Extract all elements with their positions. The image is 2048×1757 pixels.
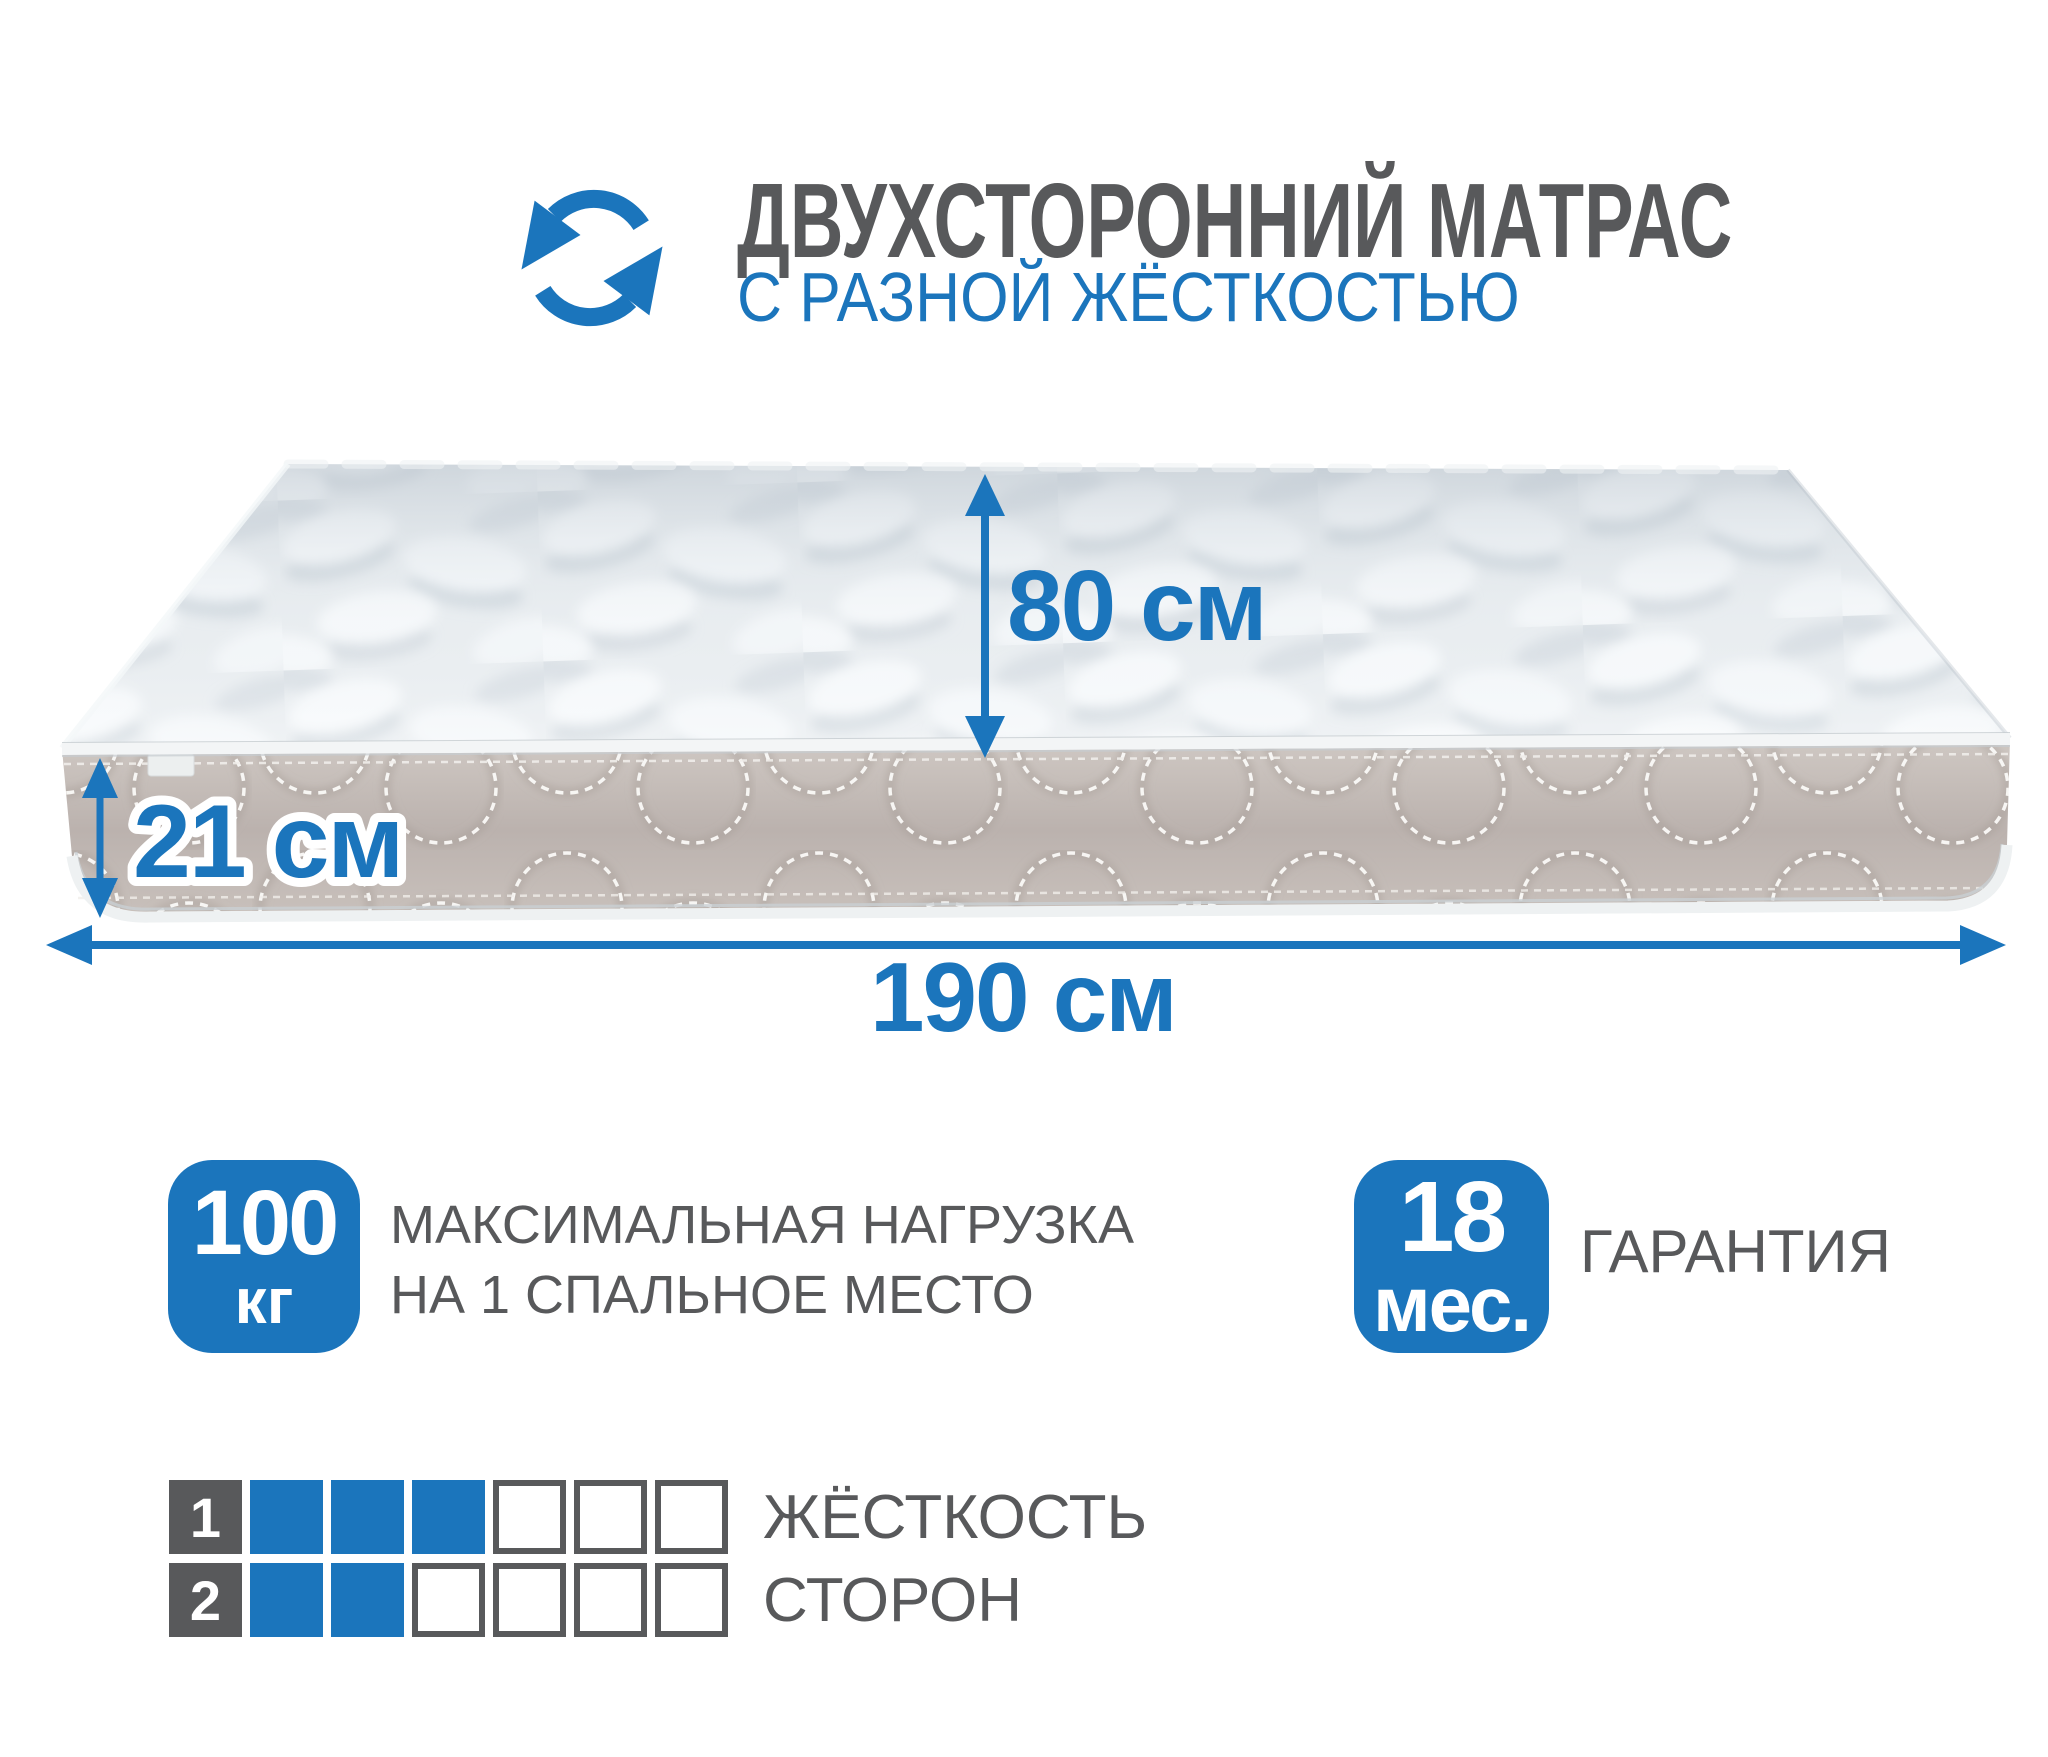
firmness-cell-empty [493,1480,566,1554]
firmness-cell-filled [331,1480,404,1554]
firmness-cell-empty [655,1563,728,1637]
firmness-cell-empty [574,1563,647,1637]
max-load-label-line2: НА 1 СПАЛЬНОЕ МЕСТО [390,1260,1134,1330]
infographic-page: ДВУХСТОРОННИЙ МАТРАС С РАЗНОЙ ЖЁСТКОСТЬЮ [0,0,2048,1757]
firmness-scale-label: ЖЁСТКОСТЬ СТОРОН [763,1480,1147,1646]
firmness-cell-filled [250,1563,323,1637]
firmness-cell-empty [493,1563,566,1637]
warranty-badge: 18 мес. [1354,1160,1549,1353]
thickness-dimension-label: 21 см [133,784,402,900]
warranty-value: 18 [1399,1170,1504,1265]
firmness-scale-label-line2: СТОРОН [763,1563,1147,1637]
firmness-scale-label-line1: ЖЁСТКОСТЬ [763,1480,1147,1554]
max-load-label: МАКСИМАЛЬНАЯ НАГРУЗКА НА 1 СПАЛЬНОЕ МЕСТ… [390,1190,1134,1330]
firmness-cell-empty [412,1563,485,1637]
firmness-cell-empty [574,1480,647,1554]
warranty-label: ГАРАНТИЯ [1580,1222,1891,1282]
firmness-cell-filled [412,1480,485,1554]
width-dimension-label: 80 см [1007,550,1266,662]
mattress-tag [148,754,194,776]
firmness-cell-empty [655,1480,728,1554]
max-load-value: 100 [192,1180,337,1267]
max-load-label-line1: МАКСИМАЛЬНАЯ НАГРУЗКА [390,1190,1134,1260]
length-dimension-label: 190 см [870,942,1176,1052]
firmness-row: 2 [169,1563,736,1637]
max-load-badge: 100 кг [168,1160,360,1353]
firmness-row-index: 2 [169,1563,242,1637]
firmness-cell-filled [331,1563,404,1637]
firmness-cell-filled [250,1480,323,1554]
max-load-unit: кг [235,1269,294,1333]
firmness-scale-rows: 12 [169,1480,736,1646]
firmness-row: 1 [169,1480,736,1554]
warranty-unit: мес. [1373,1265,1530,1343]
firmness-row-index: 1 [169,1480,242,1554]
